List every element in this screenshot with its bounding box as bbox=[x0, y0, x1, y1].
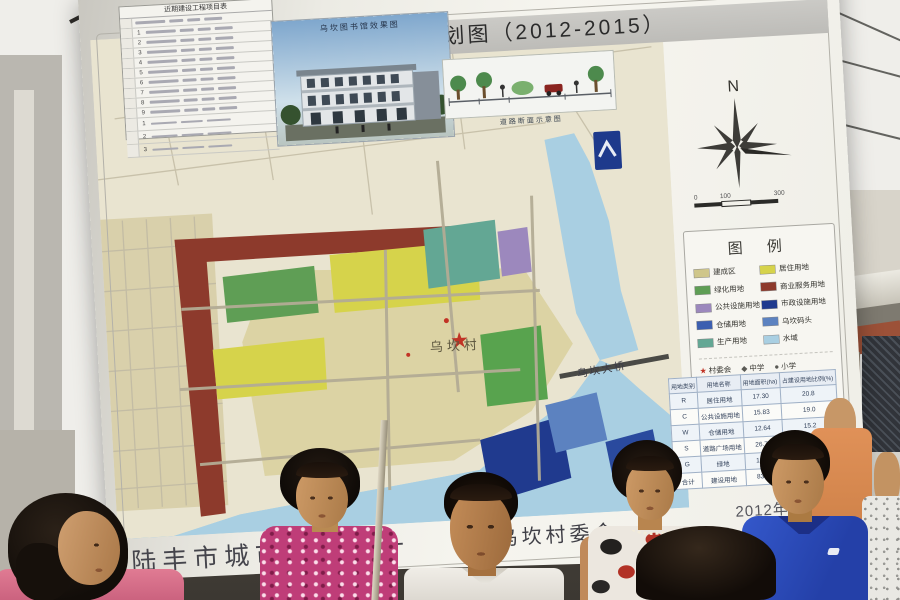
legend-item: 居住用地 bbox=[760, 260, 828, 275]
scale-tick: 100 bbox=[720, 193, 731, 201]
legend-item: 生产用地 bbox=[698, 334, 763, 349]
legend-swatch bbox=[695, 286, 710, 295]
project-table: 近期建设工程项目表 1 2 3 4 5 6 7 8 9 1 2 3 bbox=[118, 0, 279, 140]
hair bbox=[636, 526, 776, 600]
person-back-of-head bbox=[636, 526, 776, 600]
road-section-panel: 道路断面示意图 bbox=[443, 51, 616, 118]
person-man-white-shirt bbox=[398, 468, 566, 600]
legend-title: 图 例 bbox=[692, 232, 827, 260]
person-pink-shirt bbox=[0, 485, 195, 600]
diamond-icon: ◆ bbox=[741, 364, 748, 373]
legend-item: 乌坎码头 bbox=[763, 313, 831, 328]
dot-icon: ● bbox=[774, 362, 779, 371]
hair-fringe bbox=[772, 444, 824, 460]
legend-swatch bbox=[761, 282, 776, 291]
legend-item: 仓储用地 bbox=[697, 317, 762, 332]
scale-bar: 0 100 300 bbox=[694, 191, 787, 208]
legend-swatch bbox=[763, 317, 778, 326]
star-icon: ★ bbox=[699, 366, 707, 375]
legend-items: 建成区 居住用地 绿化用地 商业服务用地 公共设施用地 市政设施用地 仓储用地 … bbox=[694, 260, 832, 348]
legend-item: 公共设施用地 bbox=[696, 299, 761, 314]
road-section-image bbox=[443, 51, 616, 118]
legend-item: 水域 bbox=[764, 330, 832, 345]
scale-tick: 300 bbox=[774, 190, 785, 198]
compass-block: N 0 100 300 bbox=[673, 75, 801, 221]
legend-swatch bbox=[696, 303, 711, 312]
legend-swatch bbox=[760, 265, 775, 274]
hair-fringe bbox=[296, 462, 348, 478]
legend-swatch bbox=[762, 300, 777, 309]
legend-item: 商业服务用地 bbox=[761, 278, 829, 293]
photo-of-planning-billboard: 乌坎村 乌坎大桥 近期建设规划图（2012-2015） 近期建设工程项目表 1 … bbox=[0, 0, 900, 600]
scale-tick: 0 bbox=[694, 194, 698, 201]
face bbox=[58, 511, 120, 585]
face bbox=[450, 490, 512, 570]
library-rendering-panel: 乌坎图书馆效果图 bbox=[271, 12, 454, 146]
polo-logo bbox=[827, 548, 840, 555]
legend-swatch bbox=[698, 338, 713, 347]
hair-fringe bbox=[626, 456, 674, 471]
compass-rose-icon bbox=[674, 93, 799, 196]
legend-item: 绿化用地 bbox=[695, 282, 760, 297]
legend-swatch bbox=[764, 335, 779, 344]
left-pole bbox=[14, 90, 34, 450]
hair-fringe bbox=[450, 484, 512, 501]
legend-item: 市政设施用地 bbox=[762, 295, 830, 310]
legend-item: 建成区 bbox=[694, 264, 759, 279]
legend-swatch bbox=[694, 268, 709, 277]
legend-swatch bbox=[697, 321, 712, 330]
